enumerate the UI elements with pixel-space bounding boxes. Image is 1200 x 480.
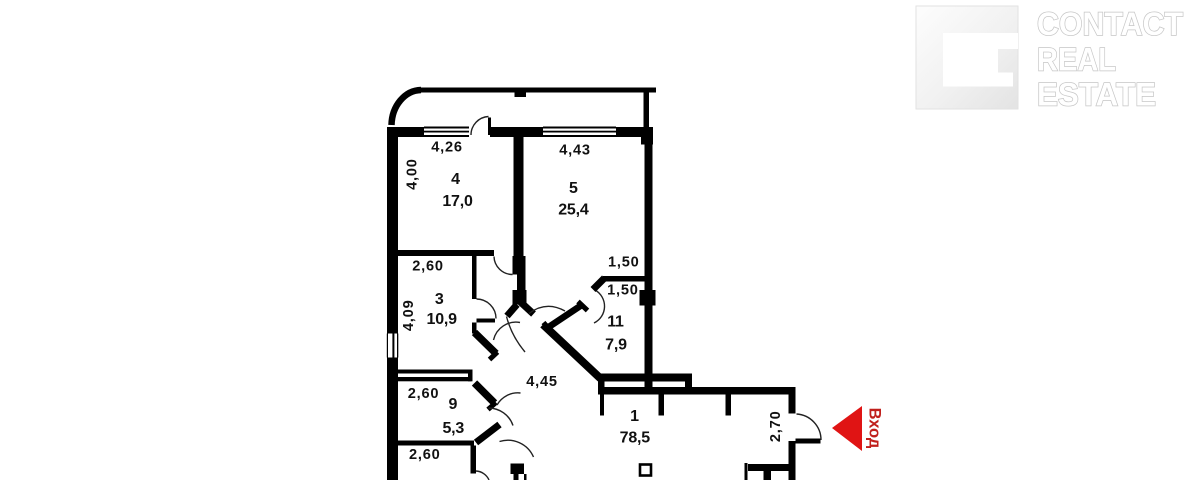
svg-text:25,4: 25,4 [558,202,589,219]
svg-text:4: 4 [451,171,460,188]
svg-text:4,09: 4,09 [401,299,417,331]
svg-text:2,60: 2,60 [412,258,444,274]
svg-text:5,3: 5,3 [442,420,464,437]
svg-text:10,9: 10,9 [427,311,458,328]
svg-text:4,00: 4,00 [405,158,421,190]
svg-text:1: 1 [630,408,639,425]
svg-text:5: 5 [569,180,578,197]
svg-text:REAL: REAL [1037,42,1116,78]
svg-text:2,70: 2,70 [768,410,784,442]
svg-text:Вход: Вход [866,408,884,449]
svg-text:4,26: 4,26 [431,139,463,155]
svg-text:2,60: 2,60 [408,386,440,402]
svg-text:ESTATE: ESTATE [1037,77,1156,113]
svg-text:CONTACT: CONTACT [1037,6,1183,42]
svg-text:17,0: 17,0 [442,193,473,210]
svg-text:9: 9 [448,396,457,413]
svg-text:1,50: 1,50 [607,282,639,298]
svg-text:4,45: 4,45 [526,374,558,390]
svg-text:3: 3 [435,291,444,308]
svg-text:2,60: 2,60 [409,447,441,463]
svg-text:78,5: 78,5 [620,429,651,446]
svg-text:11: 11 [607,313,624,330]
svg-text:4,43: 4,43 [559,142,591,158]
svg-text:1,50: 1,50 [608,254,640,270]
svg-text:7,9: 7,9 [605,336,627,353]
